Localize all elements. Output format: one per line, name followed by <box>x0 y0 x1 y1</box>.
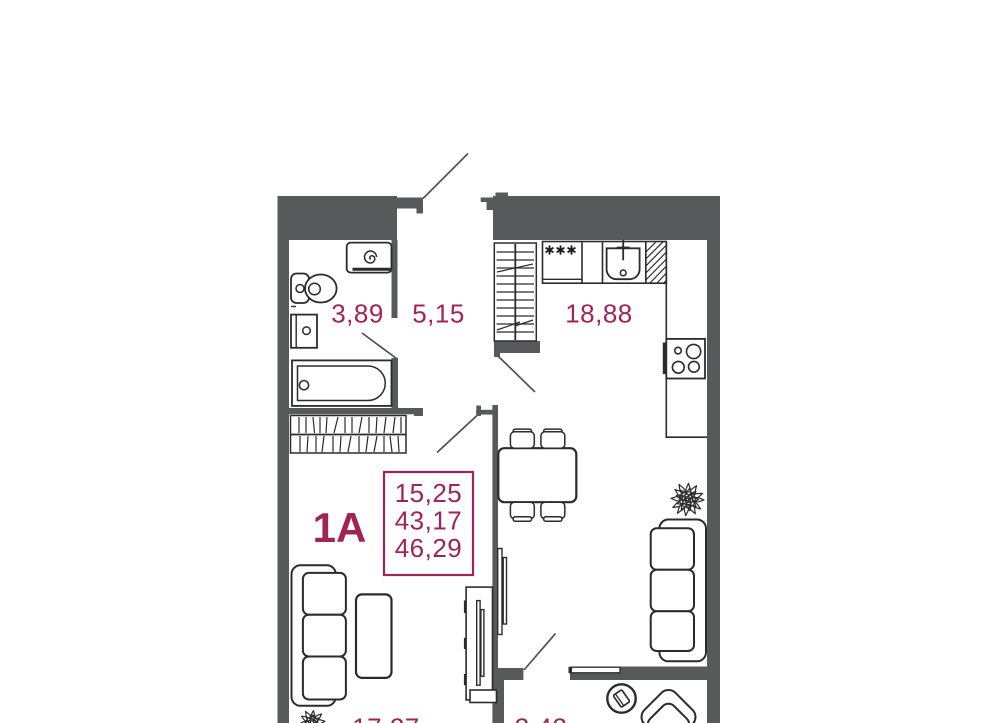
svg-text:3,42: 3,42 <box>515 713 568 723</box>
svg-text:1А: 1А <box>313 504 367 551</box>
svg-text:18,88: 18,88 <box>565 298 633 328</box>
svg-text:46,29: 46,29 <box>395 533 463 563</box>
svg-text:5,15: 5,15 <box>412 298 465 328</box>
svg-text:15,25: 15,25 <box>395 478 463 508</box>
svg-text:43,17: 43,17 <box>395 506 463 536</box>
svg-text:17,27: 17,27 <box>352 713 420 723</box>
svg-text:3,89: 3,89 <box>331 298 384 328</box>
